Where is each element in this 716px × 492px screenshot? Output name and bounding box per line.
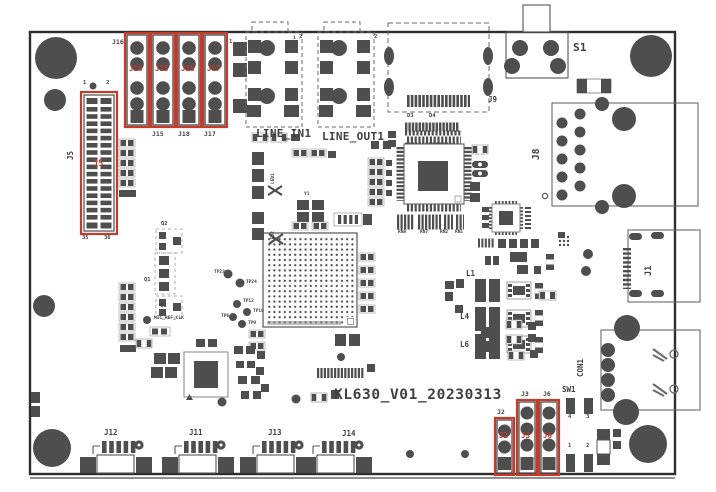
label-l4: L4 bbox=[460, 313, 469, 321]
highlight-label-j5: J5 bbox=[93, 160, 103, 169]
pcb-board-drawing bbox=[0, 0, 716, 492]
label-led2: LED2 bbox=[272, 231, 277, 242]
label-line-in1: LINE_IN1 bbox=[256, 128, 311, 139]
label-tp6: TP6 bbox=[221, 315, 229, 320]
label-j5-pin2: 2 bbox=[106, 81, 109, 87]
label-j15-silk: J15 bbox=[152, 131, 164, 138]
label-con1: CON1 bbox=[577, 359, 585, 377]
label-tp24: TP24 bbox=[246, 281, 257, 286]
label-j5-pin1: 1 bbox=[83, 81, 86, 87]
label-rn1: RN1 bbox=[455, 231, 463, 236]
label-mic-ref-clk: MIC_REF_CLK bbox=[154, 317, 184, 322]
label-d3: D3 bbox=[407, 114, 414, 120]
label-j11: J11 bbox=[189, 429, 203, 437]
label-tp23: TP23 bbox=[214, 271, 225, 276]
label-j9: J9 bbox=[488, 96, 497, 104]
highlight-label-j3: J3 bbox=[521, 432, 530, 440]
label-tp12: TP12 bbox=[243, 300, 254, 305]
label-q2: Q2 bbox=[161, 222, 168, 228]
bga-chip bbox=[263, 233, 357, 327]
label-d4: D4 bbox=[429, 114, 436, 120]
label-j5-silk: J5 bbox=[67, 151, 75, 160]
label-line-out1: LINE_OUT1 bbox=[322, 131, 384, 142]
label-sw1-pin3: 3 bbox=[586, 415, 589, 421]
label-sw1-pin2: 2 bbox=[586, 444, 589, 450]
label-l6: L6 bbox=[460, 341, 469, 349]
label-rn7: RN7 bbox=[420, 231, 428, 236]
label-j18-silk: J18 bbox=[178, 131, 190, 138]
label-j6-silk: J6 bbox=[543, 391, 551, 398]
label-j12: J12 bbox=[104, 429, 118, 437]
label-j8: J8 bbox=[532, 149, 542, 160]
label-j17-silk: J17 bbox=[204, 131, 216, 138]
label-tp9: TP9 bbox=[248, 322, 256, 327]
label-j3-silk: J3 bbox=[521, 391, 529, 398]
label-j13: J13 bbox=[268, 429, 282, 437]
label-rn2: RN2 bbox=[440, 231, 448, 236]
label-j5-pin36: 36 bbox=[104, 236, 111, 242]
label-j1: J1 bbox=[645, 266, 654, 276]
label-y1: Y1 bbox=[304, 193, 309, 198]
label-sw1-pin4: 4 bbox=[568, 415, 571, 421]
board-title: KL630_V01_20230313 bbox=[334, 388, 502, 403]
label-j2-silk: J2 bbox=[497, 409, 505, 416]
label-s1: S1 bbox=[573, 42, 587, 53]
label-l1: L1 bbox=[466, 270, 475, 278]
highlight-label-j16: J16 bbox=[129, 65, 143, 73]
label-q3: Q3 bbox=[160, 304, 167, 310]
highlight-label-j6: J6 bbox=[543, 432, 552, 440]
pcb-silkscreen-view: J16 1 J16 J15 J18 J17 J15 J18 J17 J5 J5 … bbox=[0, 0, 716, 492]
label-j16-silk: J16 bbox=[112, 39, 124, 46]
label-jack2-pin2: 2 bbox=[374, 35, 377, 41]
label-tp10: TP10 bbox=[253, 310, 264, 315]
highlight-label-j2: J2 bbox=[499, 432, 508, 440]
label-rn8: RN8 bbox=[398, 231, 406, 236]
label-jack1-pin2: 2 bbox=[299, 35, 302, 41]
highlight-label-j17: J17 bbox=[207, 65, 221, 73]
label-j14: J14 bbox=[342, 430, 356, 438]
label-jack1-pin1: 1 bbox=[293, 37, 296, 42]
label-led1: LED1 bbox=[272, 173, 277, 184]
highlight-label-j15: J15 bbox=[155, 65, 169, 73]
label-sw1-pin1: 1 bbox=[568, 444, 571, 450]
highlight-label-j18: J18 bbox=[181, 65, 195, 73]
label-sw1: SW1 bbox=[562, 386, 576, 394]
label-j5-pin35: 35 bbox=[82, 236, 89, 242]
label-header-pin1: 1 bbox=[229, 40, 232, 46]
label-q1: Q1 bbox=[144, 278, 151, 284]
